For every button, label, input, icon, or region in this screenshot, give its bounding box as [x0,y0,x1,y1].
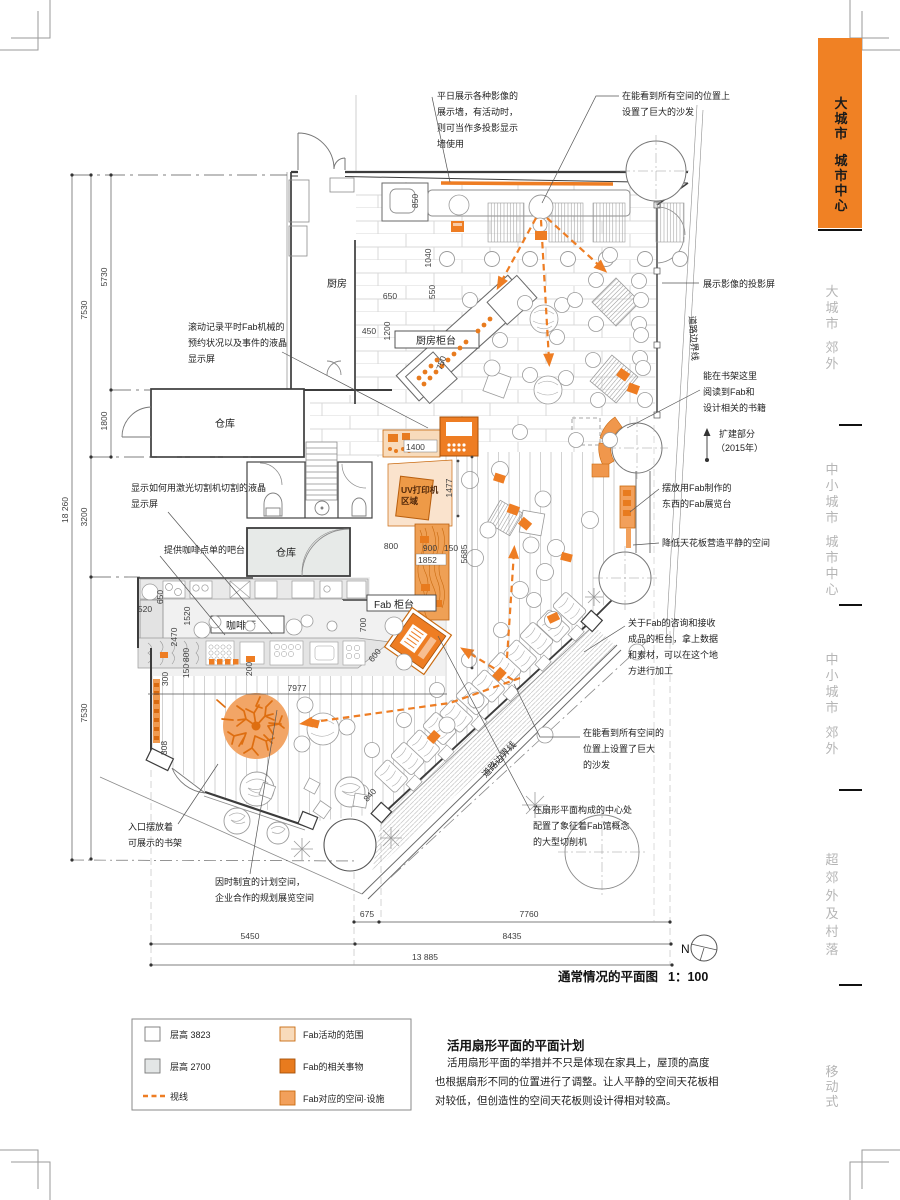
svg-text:1040: 1040 [423,248,433,267]
svg-text:及: 及 [825,906,838,921]
svg-text:中: 中 [825,652,838,667]
svg-text:外: 外 [825,356,838,371]
svg-text:仓库: 仓库 [276,546,296,559]
svg-text:7977: 7977 [288,683,307,693]
svg-text:小: 小 [825,478,838,493]
svg-text:（2015年）: （2015年） [716,442,763,453]
svg-text:扩建部分: 扩建部分 [719,428,755,439]
svg-text:降低天花板营造平静的空间: 降低天花板营造平静的空间 [662,537,770,548]
svg-text:落: 落 [825,942,838,957]
svg-text:800: 800 [181,648,191,662]
svg-text:村: 村 [825,924,838,939]
svg-text:N: N [681,942,690,956]
svg-text:Fab活动的范围: Fab活动的范围 [303,1029,364,1040]
svg-text:小: 小 [825,668,838,683]
svg-text:5685: 5685 [459,544,469,563]
svg-text:设计相关的书籍: 设计相关的书籍 [703,402,766,413]
svg-text:厨房: 厨房 [327,277,347,290]
svg-text:提供咖啡点单的吧台: 提供咖啡点单的吧台 [164,544,245,555]
svg-text:8435: 8435 [503,931,522,941]
svg-text:在扇形平面构成的中心处: 在扇形平面构成的中心处 [533,804,632,815]
svg-text:3200: 3200 [79,507,89,526]
svg-text:关于Fab的咨询和接收: 关于Fab的咨询和接收 [628,617,716,628]
svg-text:150: 150 [444,543,458,553]
svg-text:心: 心 [834,198,847,213]
svg-text:5450: 5450 [241,931,260,941]
svg-text:仓库: 仓库 [215,417,235,430]
svg-text:城: 城 [825,534,838,549]
svg-text:能在书架这里: 能在书架这里 [703,370,757,381]
svg-text:800: 800 [384,541,398,551]
svg-text:方进行加工: 方进行加工 [628,665,673,676]
svg-text:1：100: 1：100 [668,970,708,984]
svg-text:450: 450 [362,326,376,336]
svg-text:Fab的相关事物: Fab的相关事物 [303,1061,364,1072]
svg-text:阅读到Fab和: 阅读到Fab和 [703,386,755,397]
svg-text:位置上设置了巨大: 位置上设置了巨大 [583,743,655,754]
svg-text:市: 市 [825,316,838,331]
svg-text:1520: 1520 [182,606,192,625]
svg-text:13 885: 13 885 [412,952,438,962]
svg-text:1200: 1200 [382,321,392,340]
svg-text:5730: 5730 [99,267,109,286]
svg-text:移: 移 [825,1064,838,1079]
svg-text:展示墙，有活动时，: 展示墙，有活动时， [437,106,518,117]
svg-text:动: 动 [825,1079,838,1094]
svg-text:城: 城 [834,111,847,126]
svg-text:可展示的书架: 可展示的书架 [128,837,182,848]
svg-text:郊: 郊 [825,725,838,740]
svg-text:675: 675 [360,909,374,919]
svg-text:200: 200 [244,662,254,676]
svg-text:企业合作的规划展览空间: 企业合作的规划展览空间 [215,892,314,903]
svg-text:1852: 1852 [418,555,437,565]
svg-text:通常情况的平面图: 通常情况的平面图 [558,969,658,984]
svg-text:Fab 柜台: Fab 柜台 [374,598,414,611]
svg-text:中: 中 [834,183,847,198]
svg-text:550: 550 [427,285,437,299]
svg-text:市: 市 [825,510,838,525]
svg-text:大: 大 [825,284,838,299]
svg-text:显示屏: 显示屏 [131,499,158,509]
svg-text:1800: 1800 [99,411,109,430]
svg-text:850: 850 [410,194,420,208]
svg-text:展示影像的投影屏: 展示影像的投影屏 [703,278,775,289]
svg-text:7530: 7530 [79,300,89,319]
svg-text:7530: 7530 [79,703,89,722]
svg-text:城: 城 [825,300,838,315]
svg-text:活用扇形平面的举措并不只是体现在家具上，屋顶的高度: 活用扇形平面的举措并不只是体现在家具上，屋顶的高度 [447,1056,710,1069]
svg-text:层高 2700: 层高 2700 [170,1061,211,1072]
svg-text:层高 3823: 层高 3823 [170,1029,211,1040]
svg-text:郊: 郊 [825,340,838,355]
svg-text:对较低，但创造性的空间天花板则设计得相对较高。: 对较低，但创造性的空间天花板则设计得相对较高。 [435,1094,677,1107]
svg-text:650: 650 [383,291,397,301]
svg-text:308: 308 [159,741,169,755]
svg-text:厨房柜台: 厨房柜台 [416,334,456,347]
svg-text:视线: 视线 [170,1091,188,1102]
svg-text:300: 300 [160,672,170,686]
svg-text:城: 城 [825,494,838,509]
svg-text:市: 市 [834,168,847,183]
svg-text:大: 大 [834,96,847,111]
svg-text:市: 市 [825,550,838,565]
svg-text:配置了象征着Fab馆概念: 配置了象征着Fab馆概念 [533,820,630,831]
svg-text:650: 650 [155,590,165,604]
svg-text:设置了巨大的沙发: 设置了巨大的沙发 [622,106,694,117]
svg-text:预约状况以及事件的液晶: 预约状况以及事件的液晶 [188,337,287,348]
svg-text:入口摆放着: 入口摆放着 [128,821,173,832]
svg-text:900: 900 [423,543,437,553]
svg-text:中: 中 [825,566,838,581]
svg-text:18 260: 18 260 [60,497,70,523]
svg-text:因时制宜的计划空间，: 因时制宜的计划空间， [215,876,305,887]
svg-text:式: 式 [825,1094,838,1109]
svg-text:超: 超 [825,852,838,867]
svg-text:市: 市 [834,126,847,141]
svg-text:700: 700 [358,618,368,632]
svg-text:150: 150 [181,664,191,678]
svg-text:Fab对应的空间·设施: Fab对应的空间·设施 [303,1093,385,1104]
svg-text:UV打印机: UV打印机 [401,485,439,495]
svg-text:外: 外 [825,741,838,756]
svg-text:也根据扇形不同的位置进行了调整。让人平静的空间天花板相: 也根据扇形不同的位置进行了调整。让人平静的空间天花板相 [435,1075,719,1088]
svg-text:显示如何用激光切割机切割的液晶: 显示如何用激光切割机切割的液晶 [131,482,266,493]
svg-text:的沙发: 的沙发 [583,759,610,770]
svg-text:520: 520 [138,604,152,614]
svg-text:成品的柜台，拿上数据: 成品的柜台，拿上数据 [628,633,718,644]
svg-text:则可当作多投影显示: 则可当作多投影显示 [437,122,518,133]
svg-text:城: 城 [825,684,838,699]
svg-text:2470: 2470 [169,627,179,646]
svg-text:中: 中 [825,462,838,477]
svg-text:显示屏: 显示屏 [188,354,215,364]
svg-text:在能看到所有空间的位置上: 在能看到所有空间的位置上 [622,90,730,101]
svg-text:郊: 郊 [825,870,838,885]
svg-text:7760: 7760 [520,909,539,919]
svg-text:摆放用Fab制作的: 摆放用Fab制作的 [662,482,732,493]
svg-text:和素材，可以在这个地: 和素材，可以在这个地 [628,649,718,660]
svg-text:区域: 区域 [401,496,419,506]
svg-text:活用扇形平面的平面计划: 活用扇形平面的平面计划 [447,1038,585,1053]
svg-text:1477: 1477 [444,478,454,497]
svg-text:的大型切削机: 的大型切削机 [533,836,587,847]
svg-text:1400: 1400 [406,442,425,452]
svg-text:市: 市 [825,700,838,715]
svg-text:在能看到所有空间的: 在能看到所有空间的 [583,727,664,738]
svg-text:平日展示各种影像的: 平日展示各种影像的 [437,90,518,101]
svg-text:滚动记录平时Fab机械的: 滚动记录平时Fab机械的 [188,321,285,332]
svg-text:心: 心 [825,582,838,597]
svg-text:城: 城 [834,153,847,168]
svg-text:东西的Fab展览台: 东西的Fab展览台 [662,498,732,509]
svg-text:外: 外 [825,888,838,903]
